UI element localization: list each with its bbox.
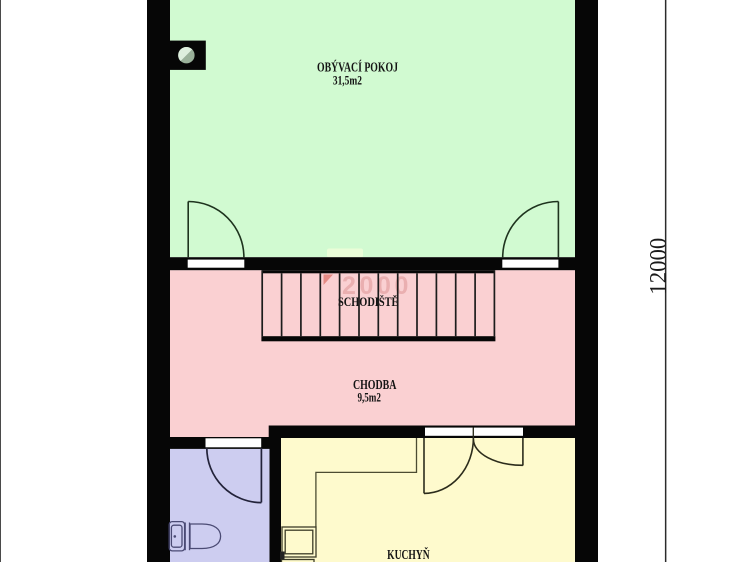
svg-text:KUCHYŇ: KUCHYŇ <box>387 547 430 562</box>
svg-text:12000: 12000 <box>646 238 672 295</box>
svg-text:31,5m2: 31,5m2 <box>333 74 362 88</box>
svg-text:OBÝVACÍ POKOJ: OBÝVACÍ POKOJ <box>317 60 398 75</box>
svg-text:9,5m2: 9,5m2 <box>357 390 381 404</box>
svg-text:SCHODIŠTĚ: SCHODIŠTĚ <box>338 294 399 309</box>
